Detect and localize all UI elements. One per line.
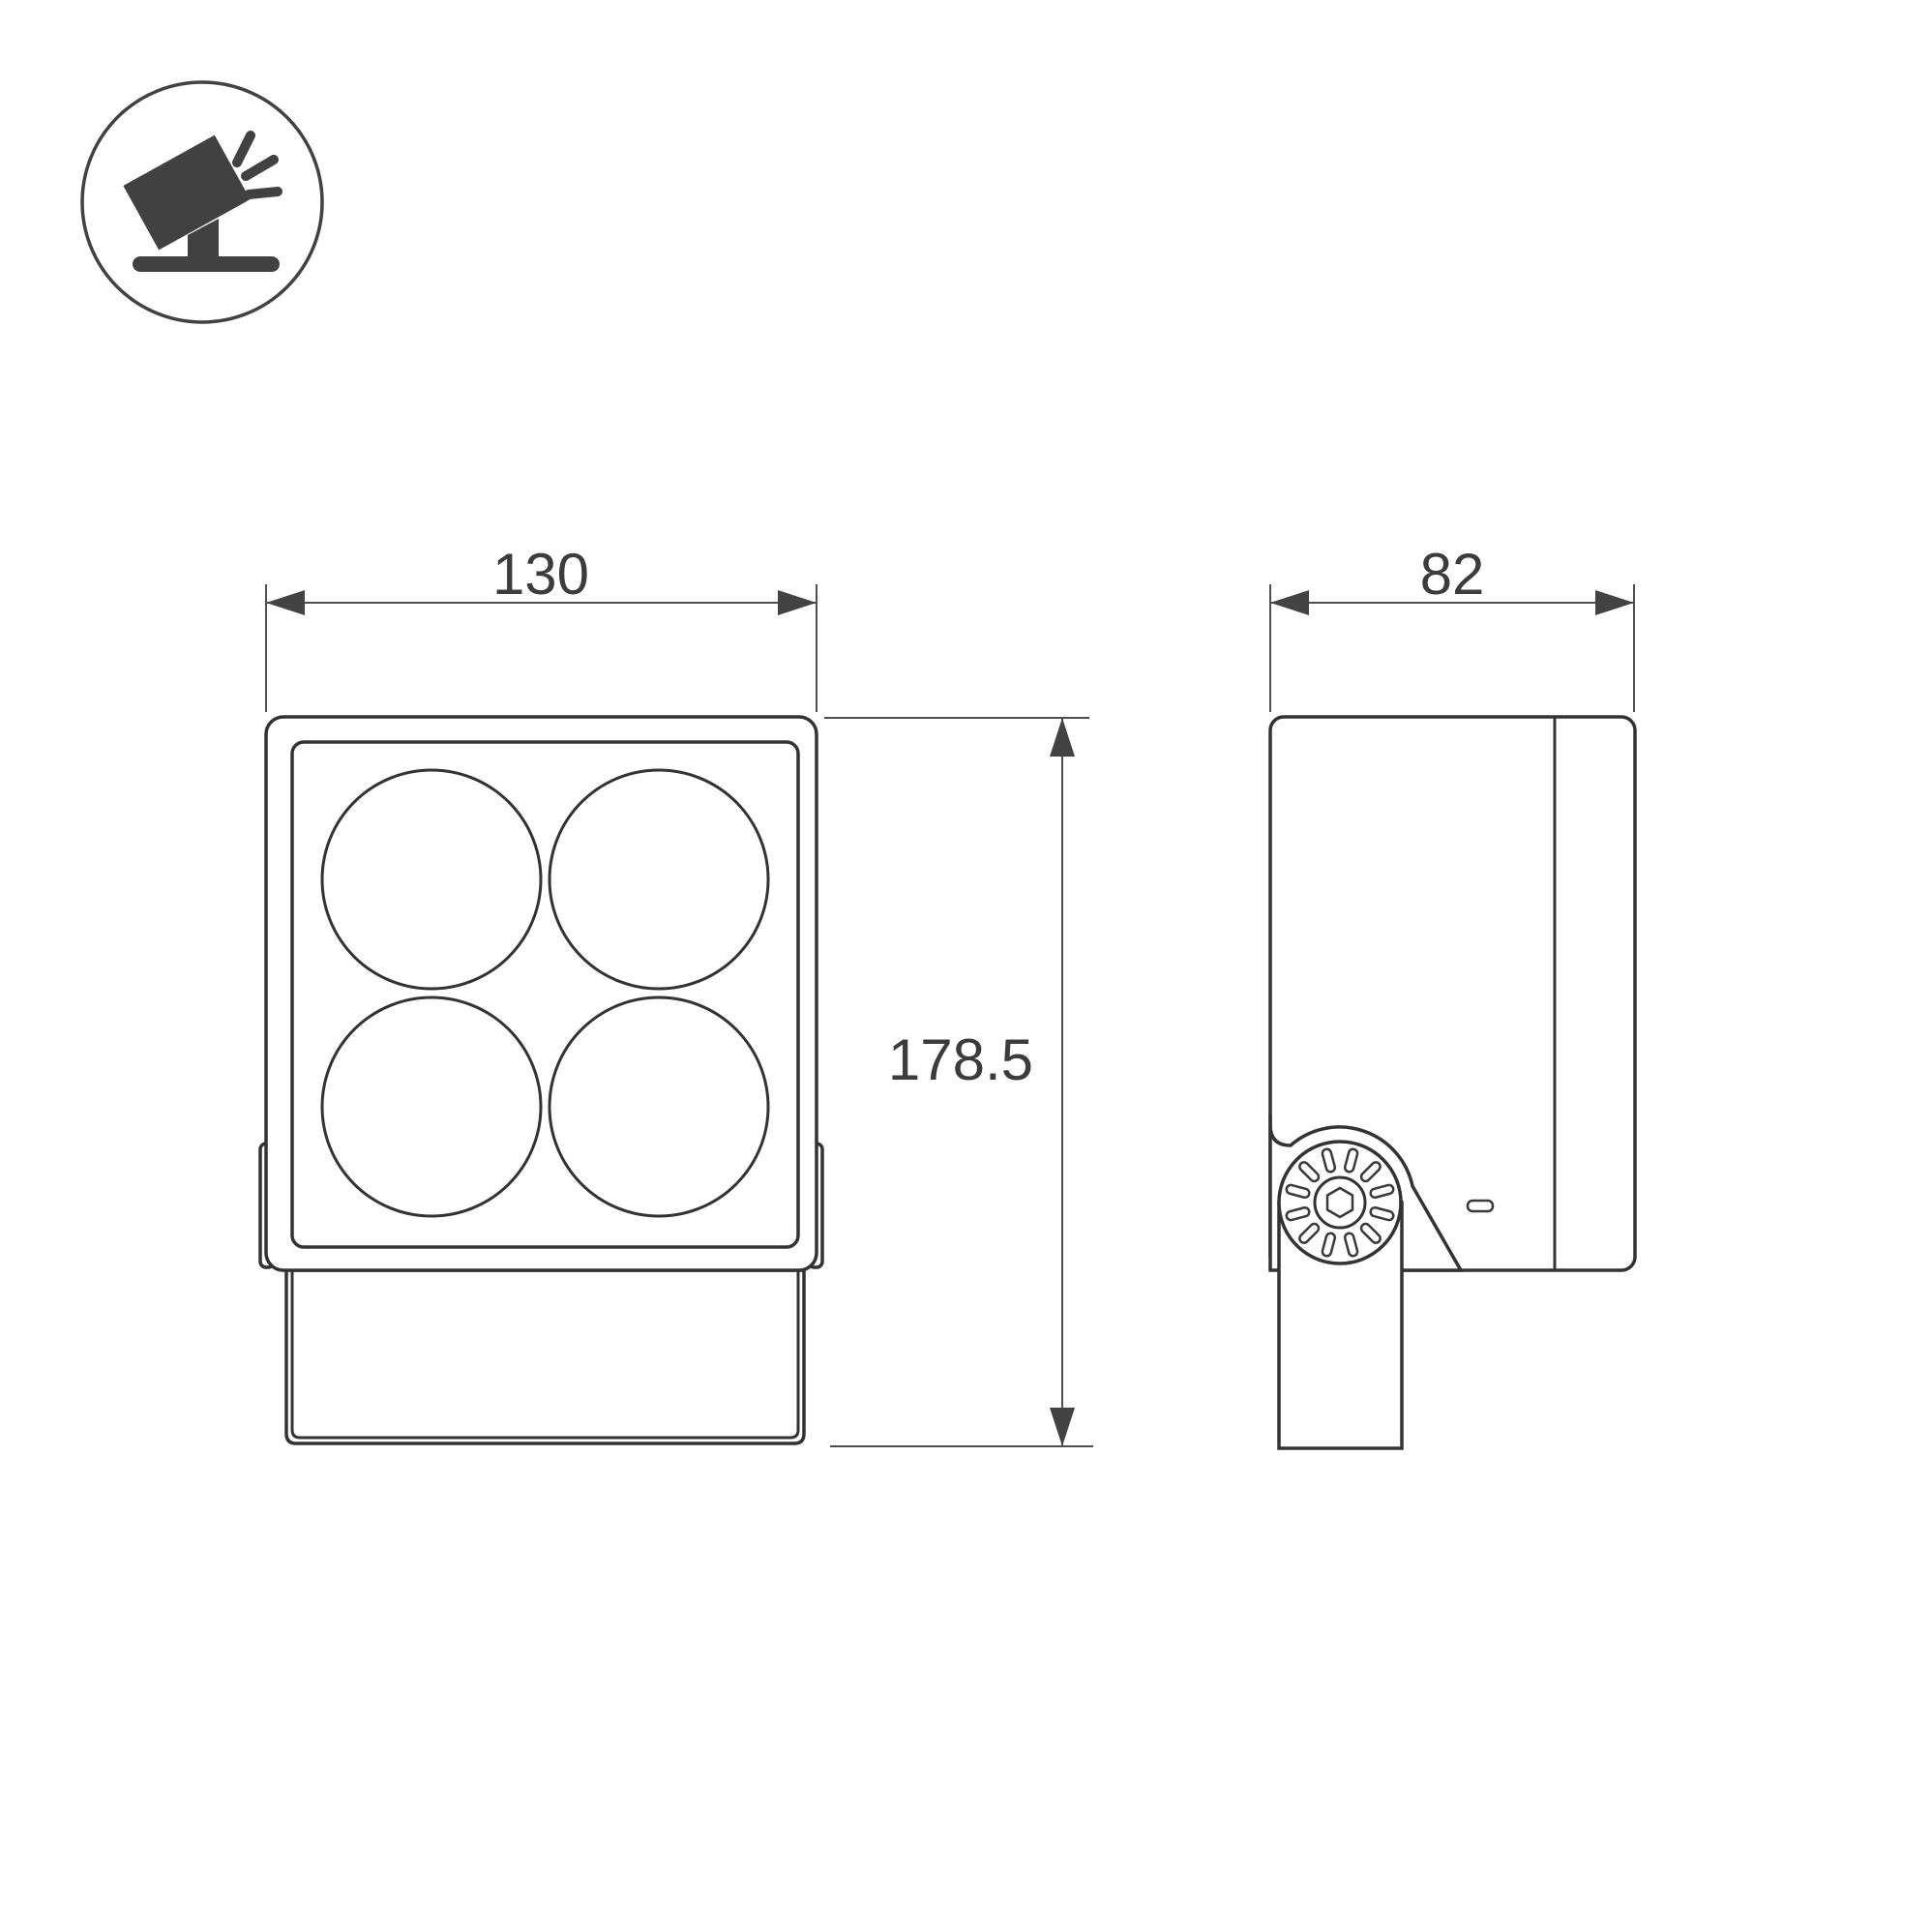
arrowhead-up — [1050, 718, 1075, 757]
depth-dimension: 82 — [1270, 542, 1634, 712]
width-dimension: 130 — [266, 542, 817, 712]
arrowhead-left — [1270, 590, 1309, 615]
front-view — [260, 717, 822, 1443]
front-bracket-crossbar — [286, 1270, 804, 1443]
side-adjustment-knob — [1279, 1142, 1401, 1263]
icon-light-rays — [237, 135, 278, 194]
icon-lamp-head — [123, 135, 250, 251]
side-view — [1270, 717, 1635, 1448]
arrowhead-right — [1595, 590, 1634, 615]
light-ray-icon — [249, 192, 278, 194]
front-bezel — [292, 742, 798, 1247]
technical-drawing-page: 130 82 178.5 — [0, 0, 1932, 1932]
dimension-label-height: 178.5 — [888, 1027, 1033, 1092]
arrowhead-right — [778, 590, 817, 615]
dimension-label-depth: 82 — [1420, 542, 1485, 607]
height-dimension: 178.5 — [824, 718, 1093, 1446]
light-ray-icon — [246, 160, 274, 176]
knob-dial-circle — [1279, 1142, 1401, 1263]
light-ray-icon — [237, 135, 251, 163]
icon-ground-base — [133, 256, 280, 272]
dimension-label-width: 130 — [492, 542, 589, 607]
dimension-drawing: 130 82 178.5 — [0, 0, 1932, 1932]
arrowhead-down — [1050, 1408, 1075, 1446]
floodlight-icon — [82, 82, 322, 322]
arrowhead-left — [266, 590, 305, 615]
